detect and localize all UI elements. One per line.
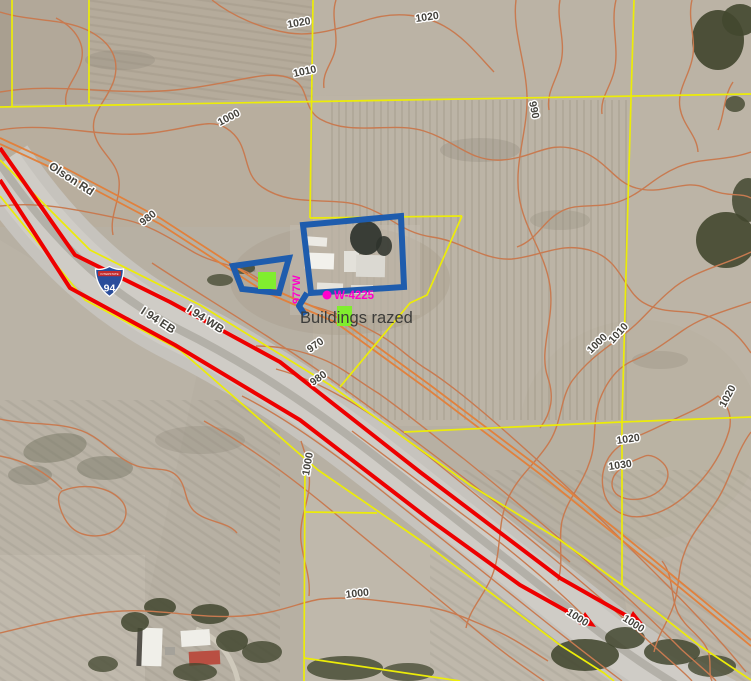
- map-canvas[interactable]: 977WW-4225102010201010100099098097098010…: [0, 0, 751, 681]
- tree-clump: [173, 663, 217, 681]
- tree-clump: [88, 656, 118, 672]
- map-viewport[interactable]: 977WW-4225102010201010100099098097098010…: [0, 0, 751, 681]
- tree-clump: [121, 612, 149, 632]
- building: [165, 647, 175, 655]
- field-patch: [313, 0, 751, 96]
- building: [306, 236, 328, 246]
- barn-shadow: [376, 236, 392, 256]
- field-stripes: [89, 0, 313, 100]
- building: [180, 629, 210, 647]
- soil-blob: [530, 210, 590, 230]
- map-layers: 977WW-4225102010201010100099098097098010…: [0, 0, 751, 681]
- interstate-shield-route: 94: [104, 283, 116, 295]
- tree-clump: [191, 604, 229, 624]
- contour-label: 1000: [345, 587, 370, 601]
- selected-feature-square: [258, 272, 276, 289]
- parcel-line: [304, 512, 377, 513]
- parcel-line: [304, 458, 305, 681]
- well-label: W-4225: [334, 290, 375, 302]
- soil-blob: [85, 50, 155, 70]
- tree-clump: [382, 663, 434, 681]
- tree-clump: [725, 96, 745, 112]
- tree-clump: [242, 641, 282, 663]
- interstate-shield-banner: INTERSTATE: [100, 272, 118, 276]
- soil-blob: [440, 138, 520, 162]
- annotation-text: Buildings razed: [300, 309, 413, 327]
- soil-blob: [155, 426, 245, 454]
- building: [356, 255, 385, 278]
- well-point: [323, 291, 332, 300]
- soil-blob: [632, 351, 688, 369]
- tree-clump: [207, 274, 233, 286]
